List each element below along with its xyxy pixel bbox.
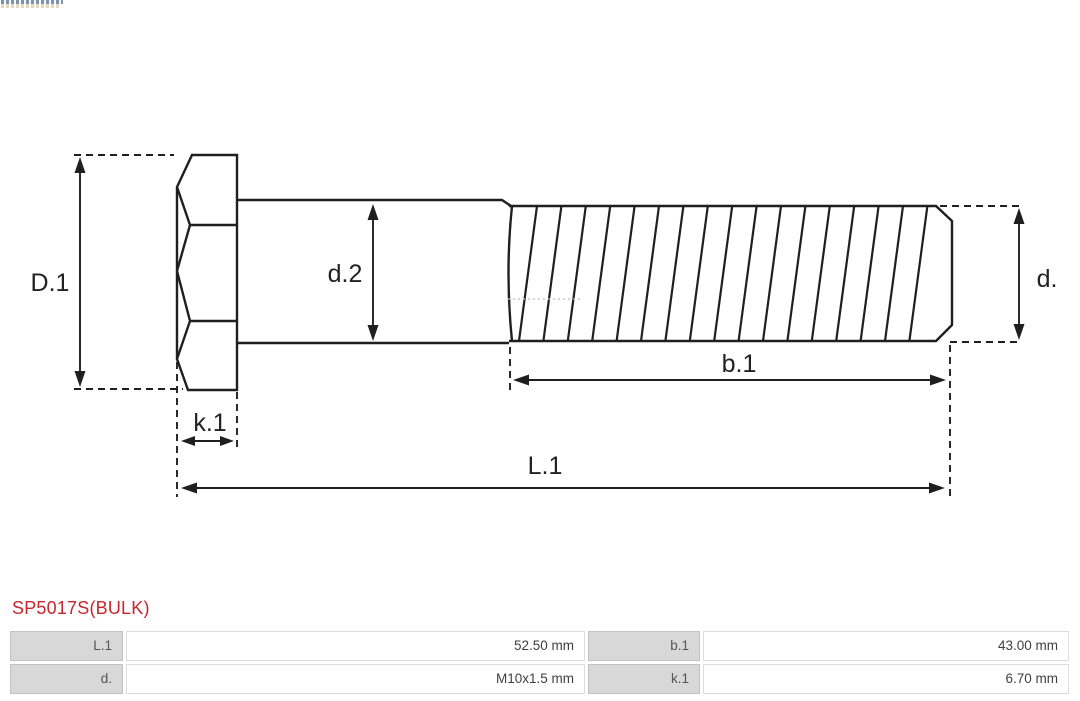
spec-value-k1: 6.70 mm (703, 664, 1069, 694)
part-number: SP5017S(BULK) (12, 598, 150, 619)
spec-label-b1: b.1 (588, 631, 700, 661)
spec-value-L1: 52.50 mm (126, 631, 585, 661)
thread-hatch-lines (519, 206, 927, 341)
bolt-thread (508, 206, 952, 341)
dimension-k1: k.1 (181, 409, 234, 446)
dimension-label-L1: L.1 (528, 452, 563, 480)
spec-label-L1: L.1 (10, 631, 123, 661)
dimension-D1: D.1 (31, 157, 86, 387)
dimension-L1: L.1 (181, 452, 945, 494)
dimension-label-b1: b.1 (722, 350, 757, 378)
dimension-d: d. (1014, 208, 1058, 340)
dimension-b1: b.1 (513, 350, 946, 386)
spec-value-b1: 43.00 mm (703, 631, 1069, 661)
dimension-label-d: d. (1037, 265, 1058, 293)
spec-label-d: d. (10, 664, 123, 694)
spec-value-d: M10x1.5 mm (126, 664, 585, 694)
dimension-label-D1: D.1 (31, 269, 70, 297)
dimension-label-d2: d.2 (328, 260, 363, 288)
spec-table: L.1 52.50 mm b.1 43.00 mm d. M10x1.5 mm … (10, 631, 1069, 694)
bolt-technical-drawing: D.1 d.2 d. b.1 k.1 L.1 (0, 0, 1080, 580)
dimension-d2: d.2 (328, 204, 379, 341)
dimension-label-k1: k.1 (193, 409, 226, 437)
spec-label-k1: k.1 (588, 664, 700, 694)
bolt-head (177, 155, 237, 390)
bolt-shank (237, 200, 511, 343)
